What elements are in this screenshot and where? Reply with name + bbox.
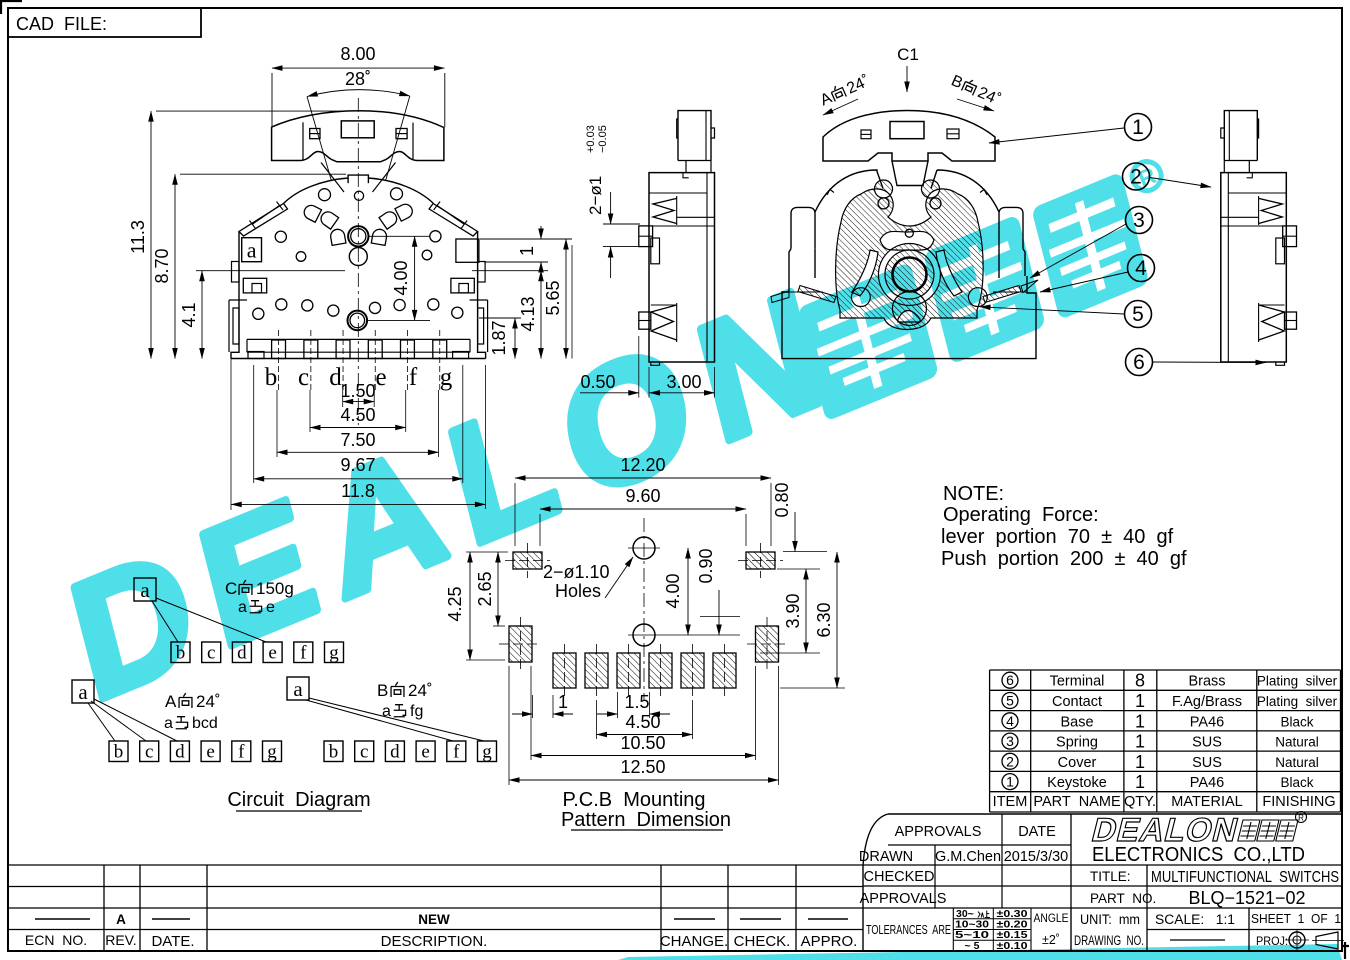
svg-text:±0.10: ±0.10: [997, 940, 1028, 952]
svg-text:e: e: [206, 742, 214, 763]
svg-text:Plating silver: Plating silver: [1257, 674, 1338, 689]
svg-text:a: a: [293, 677, 303, 701]
svg-text:ELECTRONICS CO.,LTD: ELECTRONICS CO.,LTD: [1092, 844, 1305, 866]
svg-text:150g: 150g: [256, 579, 294, 598]
svg-text:24˚: 24˚: [844, 73, 872, 98]
svg-text:a: a: [140, 578, 150, 602]
svg-text:2: 2: [1006, 753, 1014, 769]
svg-text:4.00: 4.00: [663, 573, 683, 608]
svg-text:Circuit Diagram: Circuit Diagram: [227, 789, 370, 811]
svg-text:SUS: SUS: [1192, 735, 1222, 751]
svg-text:4.00: 4.00: [391, 260, 411, 295]
svg-text:DRAWN: DRAWN: [859, 849, 913, 865]
svg-text:9.60: 9.60: [625, 486, 660, 506]
svg-text:2015/3/30: 2015/3/30: [1004, 849, 1069, 865]
svg-text:a: a: [78, 680, 88, 704]
svg-text:CHECKED: CHECKED: [864, 869, 935, 885]
svg-text:BLQ−1521−02: BLQ−1521−02: [1188, 888, 1305, 908]
svg-text:PA46: PA46: [1190, 714, 1224, 730]
svg-text:e: e: [421, 742, 429, 763]
svg-text:3: 3: [1006, 733, 1014, 749]
svg-text:d: d: [237, 643, 247, 664]
svg-text:g: g: [440, 364, 453, 391]
svg-text:c: c: [360, 742, 368, 763]
svg-text:6.30: 6.30: [814, 602, 834, 637]
svg-text:12.20: 12.20: [620, 455, 665, 475]
svg-text:a: a: [238, 599, 247, 616]
svg-text:1: 1: [1006, 774, 1014, 790]
svg-text:a: a: [164, 715, 173, 732]
svg-text:bcd: bcd: [192, 715, 218, 732]
svg-text:G.M.Chen: G.M.Chen: [935, 849, 1001, 865]
svg-text:SCALE: 1:1: SCALE: 1:1: [1155, 912, 1235, 927]
svg-text:PA46: PA46: [1190, 775, 1224, 791]
svg-text:UNIT: mm: UNIT: mm: [1080, 912, 1140, 927]
svg-text:−0.05: −0.05: [597, 125, 609, 153]
svg-text:11.8: 11.8: [341, 481, 375, 501]
svg-text:4: 4: [1135, 257, 1147, 280]
svg-text:e: e: [268, 643, 276, 664]
svg-text:ANGLE: ANGLE: [1034, 913, 1069, 925]
svg-text:lever portion 70 ± 40 gf: lever portion 70 ± 40 gf: [941, 526, 1174, 548]
svg-text:5: 5: [1006, 693, 1014, 709]
svg-text:4.50: 4.50: [625, 712, 660, 732]
svg-text:e: e: [266, 599, 275, 616]
svg-text:b: b: [329, 742, 339, 763]
svg-text:Black: Black: [1280, 714, 1313, 729]
svg-text:g: g: [329, 643, 339, 664]
svg-text:2: 2: [1130, 166, 1142, 189]
svg-text:Holes: Holes: [555, 581, 601, 601]
svg-text:PROJ:: PROJ:: [1256, 936, 1288, 948]
svg-text:e: e: [375, 364, 386, 391]
svg-text:2.65: 2.65: [475, 571, 495, 606]
svg-text:R: R: [1298, 814, 1304, 823]
svg-text:Keystoke: Keystoke: [1047, 775, 1107, 791]
svg-text:0.50: 0.50: [580, 372, 615, 392]
svg-text:f: f: [453, 742, 460, 763]
svg-text:FINISHING: FINISHING: [1262, 794, 1335, 810]
svg-text:12.50: 12.50: [620, 757, 665, 777]
svg-text:SHEET 1 OF 1: SHEET 1 OF 1: [1251, 912, 1341, 926]
svg-text:d: d: [175, 742, 185, 763]
svg-text:APPRO.: APPRO.: [801, 933, 858, 950]
svg-text:0.80: 0.80: [772, 482, 792, 517]
svg-text:fg: fg: [410, 703, 423, 720]
svg-text:Brass: Brass: [1188, 674, 1225, 690]
svg-text:Terminal: Terminal: [1050, 674, 1105, 690]
svg-text:9.67: 9.67: [340, 455, 375, 475]
svg-text:8.70: 8.70: [152, 248, 172, 283]
svg-text:+0.03: +0.03: [585, 125, 597, 153]
svg-text:d: d: [390, 742, 400, 763]
svg-text:NEW: NEW: [418, 912, 450, 927]
svg-text:g: g: [482, 742, 492, 763]
svg-text:g: g: [267, 742, 277, 763]
svg-text:P.C.B Mounting: P.C.B Mounting: [562, 789, 705, 811]
svg-text:4.25: 4.25: [445, 586, 465, 621]
svg-text:4.50: 4.50: [340, 405, 375, 425]
svg-text:PART NAME: PART NAME: [1033, 794, 1121, 810]
svg-text:1: 1: [558, 692, 568, 712]
svg-text:a: a: [247, 238, 257, 263]
svg-text:1: 1: [1135, 711, 1145, 731]
svg-text:1: 1: [1135, 732, 1145, 752]
svg-text:REV.: REV.: [105, 932, 136, 948]
svg-text:5.65: 5.65: [543, 280, 563, 315]
svg-text:SUS: SUS: [1192, 755, 1222, 771]
svg-text:Push portion 200 ± 40 gf: Push portion 200 ± 40 gf: [941, 548, 1187, 570]
svg-text:CAD FILE:: CAD FILE:: [16, 14, 107, 34]
svg-text:1.50: 1.50: [340, 381, 375, 401]
svg-text:MATERIAL: MATERIAL: [1171, 794, 1242, 810]
svg-text:1: 1: [1132, 116, 1144, 139]
svg-text:2−ø1: 2−ø1: [586, 176, 605, 215]
svg-text:Natural: Natural: [1275, 735, 1319, 750]
svg-text:TOLERANCES ARE: TOLERANCES ARE: [866, 923, 951, 937]
svg-text:F.Ag/Brass: F.Ag/Brass: [1172, 694, 1242, 710]
svg-text:3.90: 3.90: [783, 593, 803, 628]
svg-text:ECN NO.: ECN NO.: [25, 932, 87, 948]
svg-text:Spring: Spring: [1056, 735, 1098, 751]
svg-text:6: 6: [1133, 351, 1145, 374]
svg-text:C: C: [225, 579, 237, 598]
svg-text:Plating silver: Plating silver: [1257, 694, 1338, 709]
svg-text:APPROVALS: APPROVALS: [895, 824, 982, 840]
svg-text:1: 1: [1135, 772, 1145, 792]
svg-text:DESCRIPTION.: DESCRIPTION.: [381, 933, 488, 950]
svg-text:DATE: DATE: [1018, 824, 1056, 840]
svg-text:APPROVALS: APPROVALS: [860, 891, 947, 907]
svg-text:1.87: 1.87: [489, 320, 509, 355]
svg-text:10.50: 10.50: [620, 733, 665, 753]
svg-text:CHANGE.: CHANGE.: [660, 933, 728, 950]
svg-text:B: B: [377, 681, 388, 700]
svg-text:24˚: 24˚: [975, 84, 1003, 109]
svg-text:b: b: [176, 643, 186, 664]
svg-text:4.13: 4.13: [518, 296, 538, 331]
svg-text:f: f: [238, 742, 245, 763]
svg-text:6: 6: [1006, 672, 1014, 688]
svg-text:Contact: Contact: [1052, 694, 1102, 710]
svg-text:QTY.: QTY.: [1124, 794, 1156, 810]
svg-text:24˚: 24˚: [408, 681, 433, 700]
svg-text:c: c: [207, 643, 215, 664]
svg-text:28˚: 28˚: [345, 69, 371, 89]
svg-text:TITLE:: TITLE:: [1090, 869, 1131, 884]
svg-text:3: 3: [1133, 209, 1145, 232]
svg-text:2−ø1.10: 2−ø1.10: [543, 562, 610, 582]
svg-text:MULTIFUNCTIONAL SWITCHS: MULTIFUNCTIONAL SWITCHS: [1151, 869, 1339, 886]
svg-text:b: b: [114, 742, 124, 763]
svg-text:CHECK.: CHECK.: [734, 933, 791, 950]
svg-text:Operating Force:: Operating Force:: [943, 504, 1099, 526]
svg-text:Base: Base: [1060, 714, 1093, 730]
svg-text:Pattern Dimension: Pattern Dimension: [561, 809, 731, 831]
svg-text:Natural: Natural: [1275, 755, 1319, 770]
svg-text:PART NO.: PART NO.: [1090, 891, 1156, 906]
svg-text:Black: Black: [1280, 775, 1313, 790]
svg-text:24˚: 24˚: [196, 692, 221, 711]
svg-text:4: 4: [1006, 713, 1014, 729]
svg-text:A: A: [165, 692, 177, 711]
svg-text:DRAWING NO.: DRAWING NO.: [1074, 933, 1144, 948]
svg-text:4.1: 4.1: [179, 302, 199, 327]
svg-text:1: 1: [517, 246, 537, 256]
svg-text:8: 8: [1135, 671, 1145, 691]
svg-text:f: f: [409, 364, 418, 391]
svg-text:b: b: [265, 364, 278, 391]
svg-text:8.00: 8.00: [340, 44, 375, 64]
svg-text:DATE.: DATE.: [151, 933, 194, 950]
svg-text:1.5: 1.5: [624, 692, 649, 712]
svg-text:NOTE:: NOTE:: [943, 483, 1004, 505]
svg-text:1: 1: [1135, 691, 1145, 711]
svg-text:ITEM: ITEM: [993, 794, 1028, 810]
svg-text:~ 5: ~ 5: [965, 940, 980, 952]
svg-text:3.00: 3.00: [666, 372, 701, 392]
svg-text:11.3: 11.3: [128, 220, 148, 254]
svg-text:c: c: [298, 364, 309, 391]
svg-text:Cover: Cover: [1058, 755, 1097, 771]
svg-text:C1: C1: [897, 45, 919, 64]
svg-text:1: 1: [1135, 752, 1145, 772]
svg-text:7.50: 7.50: [340, 430, 375, 450]
svg-text:f: f: [300, 643, 307, 664]
svg-text:A: A: [116, 912, 126, 927]
svg-text:0.90: 0.90: [696, 548, 716, 583]
svg-text:±2˚: ±2˚: [1042, 933, 1060, 947]
svg-text:5: 5: [1132, 303, 1144, 326]
svg-text:c: c: [145, 742, 153, 763]
